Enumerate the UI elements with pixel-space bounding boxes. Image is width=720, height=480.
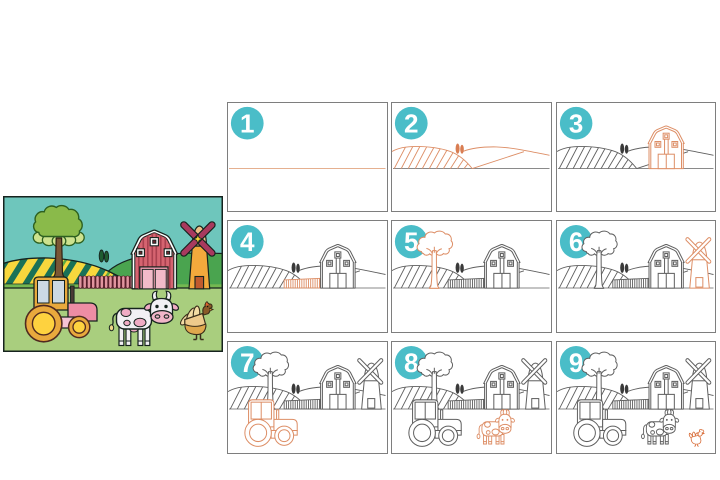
svg-text:5: 5 — [404, 227, 419, 257]
svg-text:4: 4 — [240, 227, 255, 257]
svg-text:7: 7 — [240, 348, 255, 378]
svg-text:3: 3 — [569, 110, 583, 138]
svg-text:2: 2 — [404, 108, 419, 138]
svg-text:9: 9 — [569, 348, 583, 378]
svg-text:6: 6 — [569, 227, 583, 257]
svg-text:8: 8 — [404, 348, 419, 378]
svg-text:1: 1 — [240, 108, 255, 138]
